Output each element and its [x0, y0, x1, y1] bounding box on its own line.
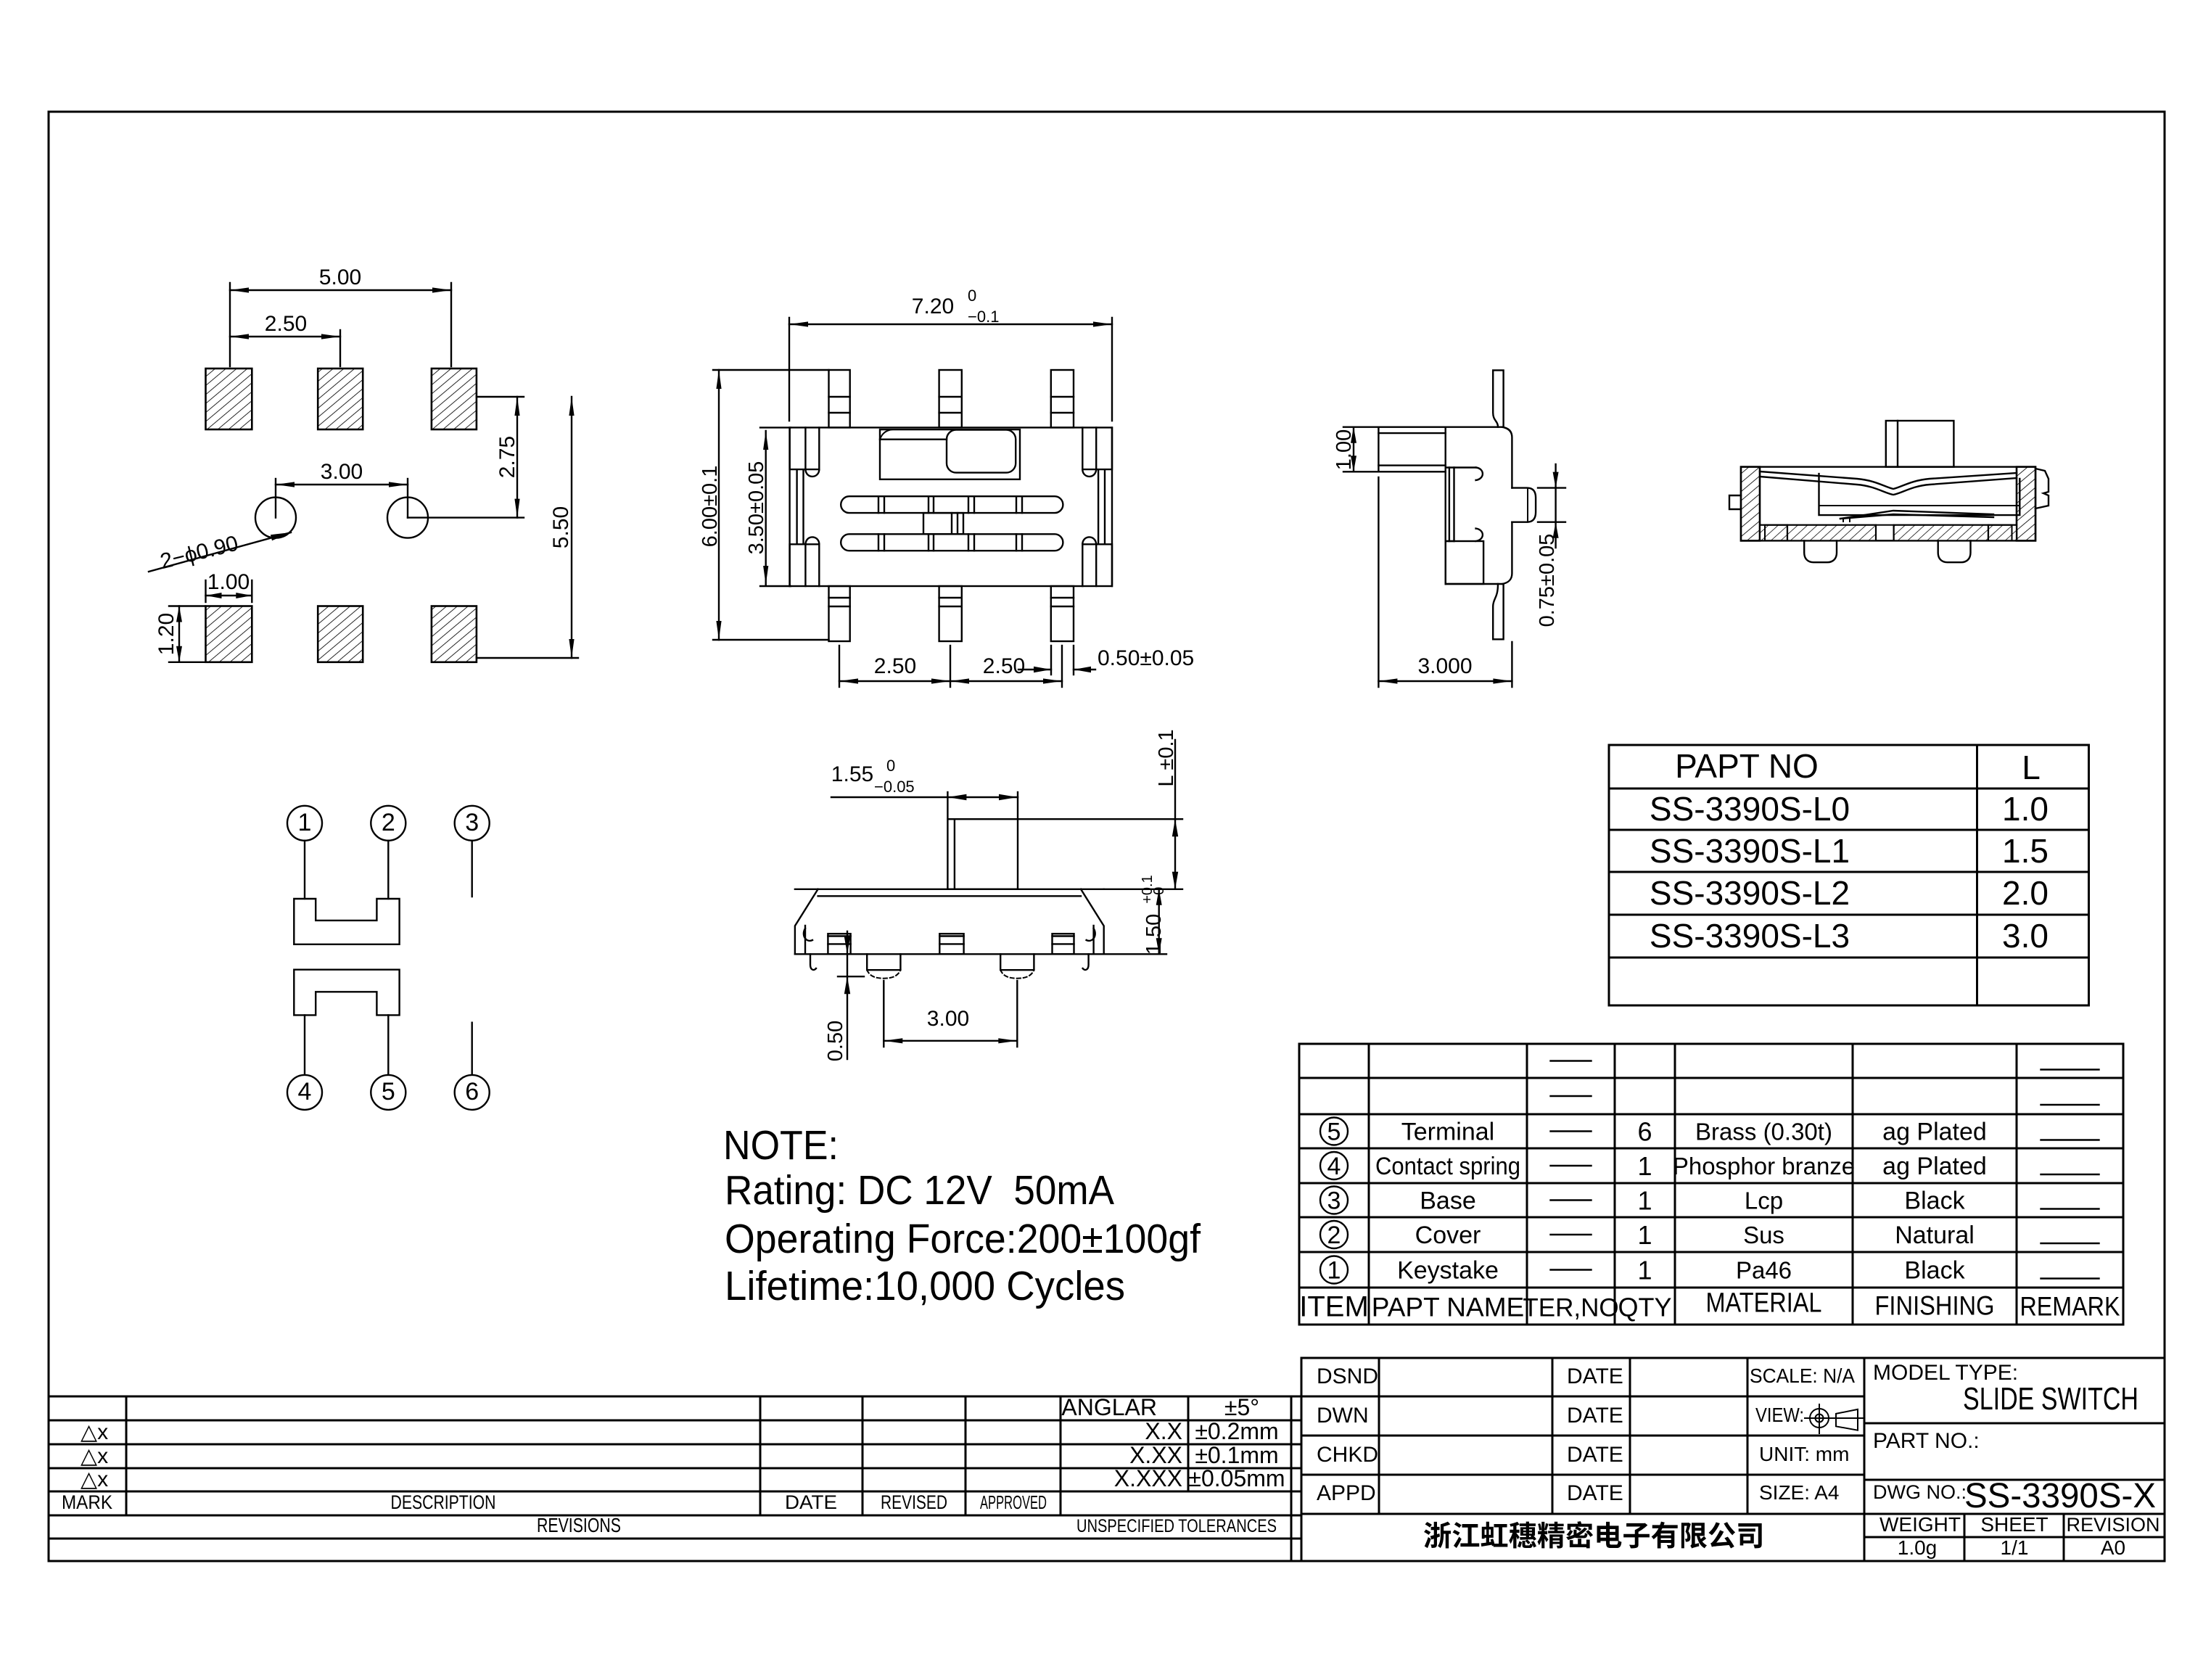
svg-text:4: 4	[1327, 1153, 1341, 1180]
svg-text:ag Plated: ag Plated	[1882, 1153, 1987, 1180]
svg-text:2: 2	[382, 809, 395, 836]
svg-text:DWN: DWN	[1317, 1404, 1369, 1428]
svg-text:Black: Black	[1904, 1257, 1965, 1285]
svg-text:SS-3390S-L2: SS-3390S-L2	[1650, 874, 1850, 912]
svg-text:DESCRIPTION: DESCRIPTION	[391, 1491, 496, 1513]
svg-text:DATE: DATE	[1567, 1443, 1623, 1467]
svg-text:Base: Base	[1420, 1187, 1476, 1215]
svg-text:0: 0	[968, 287, 976, 305]
svg-text:0.50±0.05: 0.50±0.05	[1098, 646, 1194, 670]
svg-text:ANGLAR: ANGLAR	[1061, 1394, 1157, 1420]
svg-text:MARK: MARK	[62, 1491, 112, 1513]
svg-text:PAPT NO: PAPT NO	[1675, 747, 1819, 785]
svg-text:3.00: 3.00	[927, 1007, 969, 1031]
svg-text:NOTE:: NOTE:	[723, 1122, 839, 1169]
svg-text:3.50±0.05: 3.50±0.05	[745, 461, 768, 555]
svg-text:Brass (0.30t): Brass (0.30t)	[1695, 1119, 1832, 1145]
svg-text:MATERIAL: MATERIAL	[1706, 1288, 1822, 1319]
svg-text:±0.2mm: ±0.2mm	[1195, 1418, 1278, 1444]
svg-text:SHEET: SHEET	[1980, 1513, 2048, 1536]
svg-text:DATE: DATE	[1567, 1364, 1623, 1388]
svg-text:TER,NO: TER,NO	[1523, 1294, 1618, 1322]
svg-text:5.00: 5.00	[319, 265, 361, 289]
svg-text:6: 6	[1637, 1117, 1652, 1147]
svg-text:FINISHING: FINISHING	[1875, 1291, 1995, 1321]
svg-text:1.20: 1.20	[155, 613, 178, 655]
svg-text:SS-3390S-L1: SS-3390S-L1	[1650, 832, 1850, 870]
svg-text:5: 5	[1327, 1119, 1341, 1146]
svg-text:REMARK: REMARK	[2020, 1292, 2120, 1322]
svg-text:0.75±0.05: 0.75±0.05	[1536, 534, 1559, 627]
svg-text:1.00: 1.00	[207, 570, 250, 594]
svg-text:Keystake: Keystake	[1397, 1257, 1499, 1285]
svg-text:DATE: DATE	[1567, 1481, 1623, 1505]
svg-text:DWG NO.:: DWG NO.:	[1873, 1481, 1967, 1503]
svg-text:ITEM: ITEM	[1299, 1291, 1369, 1323]
svg-text:SIZE: A4: SIZE: A4	[1759, 1481, 1840, 1504]
svg-text:Terminal: Terminal	[1401, 1119, 1494, 1146]
svg-text:DATE: DATE	[785, 1491, 837, 1513]
svg-text:△x: △x	[81, 1467, 108, 1491]
svg-text:△x: △x	[81, 1444, 108, 1468]
svg-text:2.50: 2.50	[983, 654, 1025, 678]
svg-text:VIEW:: VIEW:	[1755, 1404, 1804, 1426]
svg-text:△x: △x	[81, 1420, 108, 1444]
svg-text:Rating: DC 12V 50mA: Rating: DC 12V 50mA	[725, 1167, 1114, 1214]
svg-text:REVISIONS: REVISIONS	[537, 1514, 621, 1536]
svg-text:ag Plated: ag Plated	[1882, 1119, 1987, 1146]
svg-text:2.50: 2.50	[265, 312, 307, 336]
svg-text:1: 1	[1327, 1257, 1341, 1285]
svg-text:Black: Black	[1904, 1187, 1965, 1215]
svg-text:Operating Force:200±100gf: Operating Force:200±100gf	[725, 1216, 1201, 1262]
svg-text:1: 1	[1637, 1186, 1652, 1216]
svg-text:5.50: 5.50	[549, 506, 573, 548]
svg-text:A0: A0	[2101, 1536, 2125, 1559]
svg-text:1.0g: 1.0g	[1898, 1536, 1938, 1559]
svg-text:1.55: 1.55	[831, 762, 873, 786]
svg-text:−0.1: −0.1	[968, 308, 999, 326]
svg-text:SCALE: N/A: SCALE: N/A	[1750, 1364, 1855, 1387]
svg-text:1.0: 1.0	[2002, 790, 2049, 828]
svg-text:2.50: 2.50	[874, 654, 916, 678]
svg-text:Pa46: Pa46	[1736, 1257, 1792, 1284]
svg-text:0.50: 0.50	[824, 1021, 847, 1061]
svg-text:Cover: Cover	[1415, 1222, 1481, 1249]
svg-text:1: 1	[298, 809, 312, 836]
svg-text:±0.1mm: ±0.1mm	[1195, 1442, 1278, 1468]
svg-text:REVISED: REVISED	[881, 1491, 947, 1513]
svg-text:Lcp: Lcp	[1745, 1187, 1783, 1214]
svg-text:SS-3390S-L3: SS-3390S-L3	[1650, 917, 1850, 955]
svg-text:UNSPECIFIED TOLERANCES: UNSPECIFIED TOLERANCES	[1076, 1516, 1277, 1536]
svg-text:L: L	[2022, 749, 2041, 786]
svg-text:Natural: Natural	[1895, 1222, 1975, 1249]
svg-text:1.50: 1.50	[1142, 914, 1166, 955]
svg-text:4: 4	[298, 1078, 312, 1105]
svg-text:Phosphor branze: Phosphor branze	[1673, 1153, 1855, 1179]
svg-text:APPROVED: APPROVED	[980, 1491, 1047, 1513]
svg-text:X.XX: X.XX	[1129, 1442, 1182, 1468]
svg-text:UNIT: mm: UNIT: mm	[1759, 1443, 1849, 1465]
svg-text:1.00: 1.00	[1333, 429, 1356, 470]
svg-text:3.0: 3.0	[2002, 917, 2049, 955]
svg-text:L ±0.1: L ±0.1	[1155, 729, 1178, 786]
svg-text:DATE: DATE	[1567, 1404, 1623, 1428]
svg-text:REVISION: REVISION	[2066, 1514, 2159, 1536]
svg-text:Sus: Sus	[1743, 1222, 1784, 1248]
svg-text:1.5: 1.5	[2002, 832, 2049, 870]
svg-text:6: 6	[465, 1078, 479, 1105]
svg-text:1: 1	[1637, 1151, 1652, 1181]
svg-text:CHKD: CHKD	[1317, 1443, 1378, 1467]
svg-text:QTY: QTY	[1618, 1293, 1671, 1322]
svg-text:6.00±0.1: 6.00±0.1	[699, 466, 722, 548]
svg-text:5: 5	[382, 1078, 395, 1105]
svg-text:1/1: 1/1	[2001, 1536, 2029, 1559]
svg-text:0: 0	[886, 757, 895, 775]
svg-text:1: 1	[1637, 1220, 1652, 1250]
svg-text:1: 1	[1637, 1256, 1652, 1285]
svg-text:3: 3	[465, 809, 479, 836]
svg-text:3.00: 3.00	[321, 460, 363, 484]
svg-text:WEIGHT: WEIGHT	[1879, 1513, 1961, 1536]
svg-text:SS-3390S-L0: SS-3390S-L0	[1650, 790, 1850, 828]
svg-text:DSND: DSND	[1317, 1364, 1378, 1388]
svg-text:Contact spring: Contact spring	[1375, 1153, 1520, 1180]
svg-text:2.0: 2.0	[2002, 874, 2049, 912]
svg-text:−0.05: −0.05	[874, 778, 915, 796]
svg-text:−0: −0	[1151, 887, 1167, 904]
svg-text:PART NO.:: PART NO.:	[1873, 1429, 1980, 1453]
svg-text:2.75: 2.75	[495, 436, 519, 478]
svg-text:X.X: X.X	[1145, 1418, 1182, 1444]
svg-text:Lifetime:10,000 Cycles: Lifetime:10,000 Cycles	[725, 1263, 1125, 1309]
svg-text:3.000: 3.000	[1417, 654, 1472, 678]
svg-text:SLIDE SWITCH: SLIDE SWITCH	[1963, 1381, 2138, 1417]
svg-text:7.20: 7.20	[912, 295, 954, 318]
svg-text:APPD: APPD	[1317, 1481, 1376, 1505]
svg-text:X.XXX: X.XXX	[1114, 1465, 1182, 1491]
svg-text:±0.05mm: ±0.05mm	[1188, 1465, 1285, 1491]
svg-text:±5°: ±5°	[1224, 1394, 1259, 1420]
svg-text:PAPT NAME: PAPT NAME	[1372, 1293, 1524, 1322]
svg-text:2: 2	[1327, 1222, 1341, 1249]
svg-text:3: 3	[1327, 1187, 1341, 1215]
svg-text:SS-3390S-X: SS-3390S-X	[1964, 1477, 2156, 1515]
